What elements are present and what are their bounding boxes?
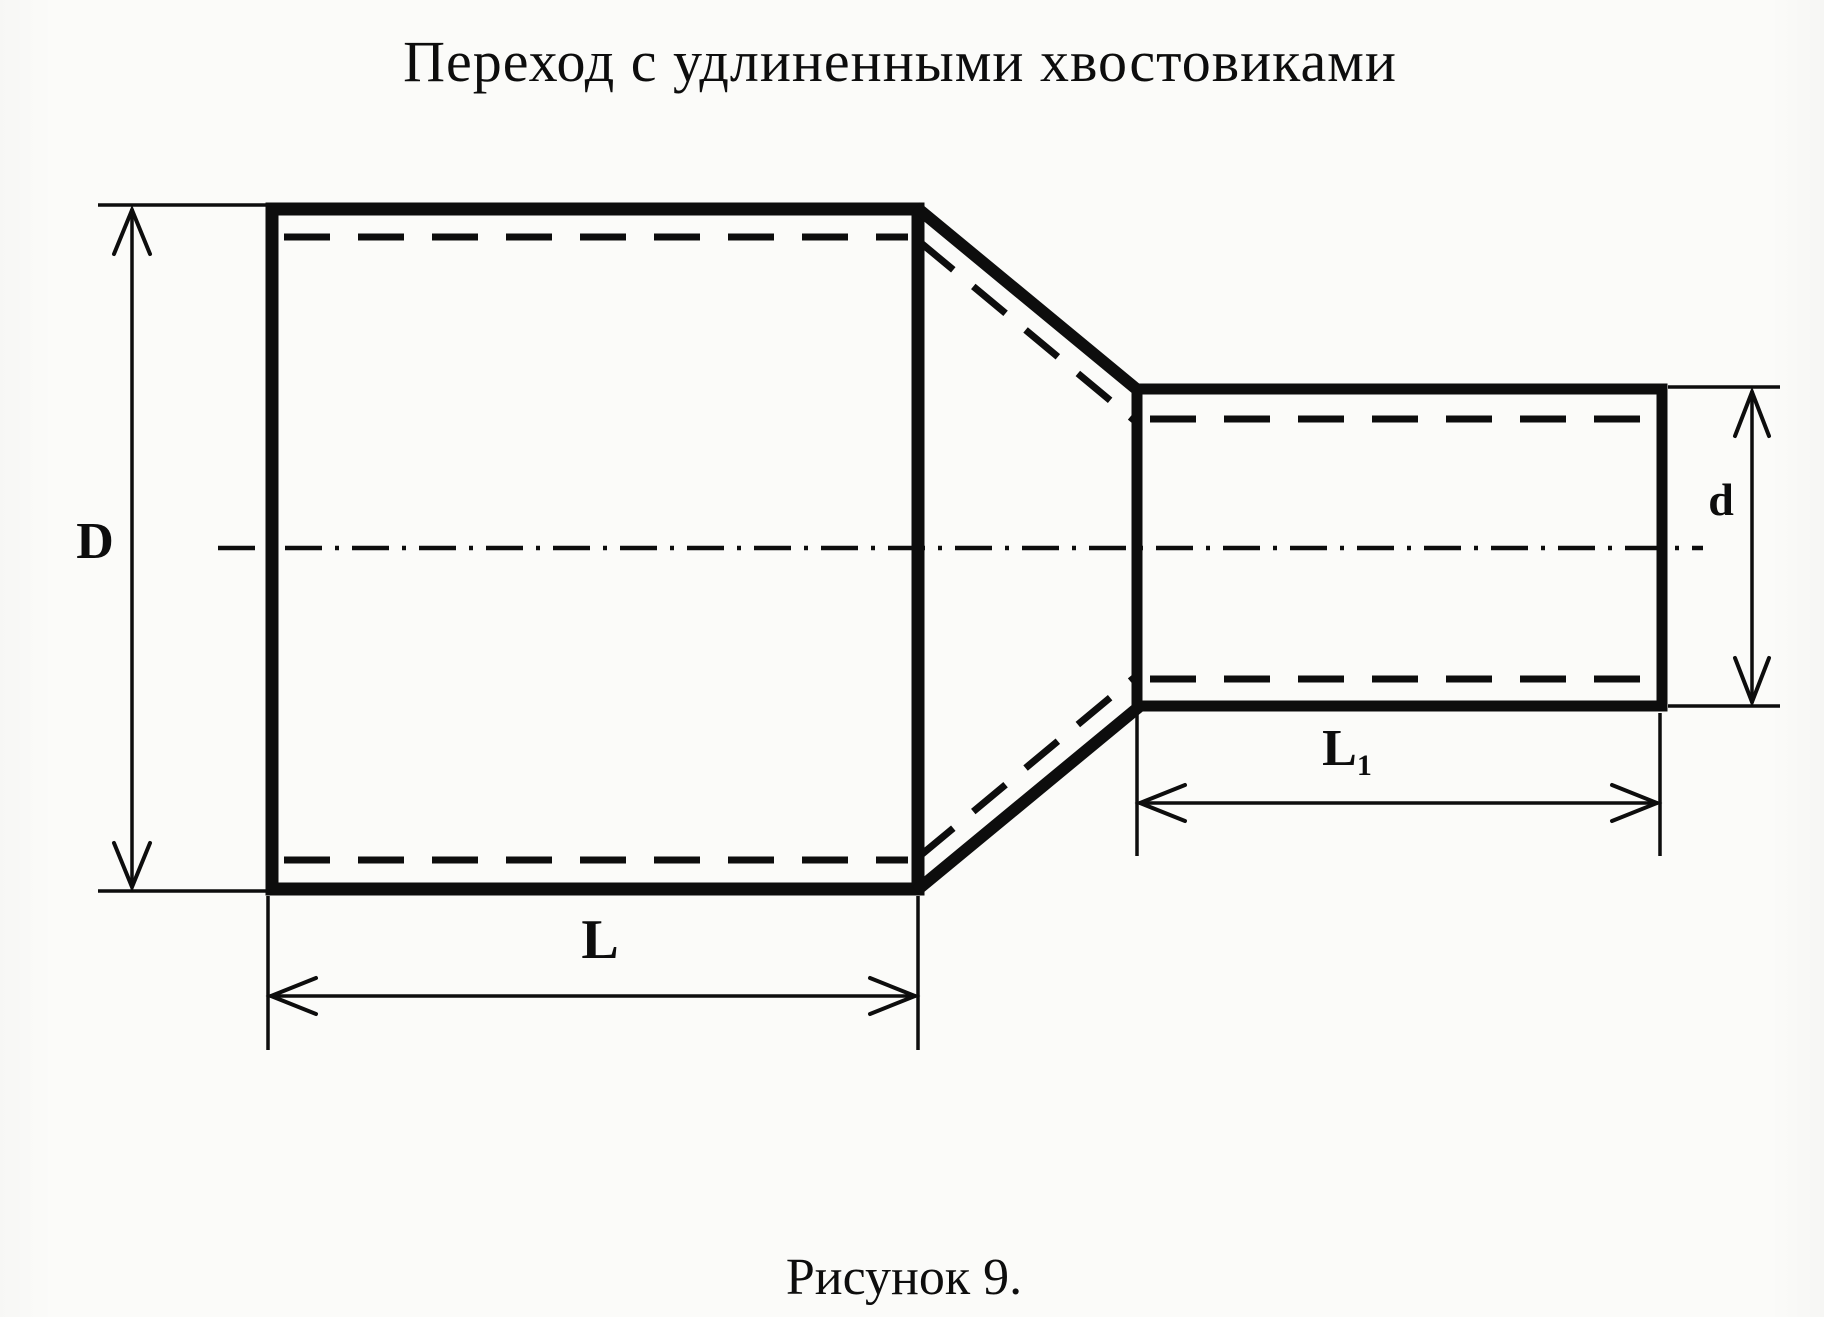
scanned-page: Переход с удлиненными хвостовиками <box>0 0 1824 1317</box>
outline-cone-bottom <box>916 706 1140 891</box>
bore-cone-bottom <box>921 677 1135 855</box>
bore-cone-top <box>921 243 1135 421</box>
dimension-label-d: d <box>1708 477 1734 523</box>
dimension-label-D: D <box>76 516 114 568</box>
dimension-label-L1-main: L <box>1322 720 1357 777</box>
technical-drawing <box>0 0 1824 1317</box>
dimension-label-L: L <box>581 912 618 968</box>
outline-cone-top <box>916 207 1140 392</box>
dimension-label-L1: L1 <box>1322 723 1372 781</box>
figure-caption: Рисунок 9. <box>786 1248 1022 1307</box>
dimension-label-L1-subscript: 1 <box>1357 749 1372 782</box>
